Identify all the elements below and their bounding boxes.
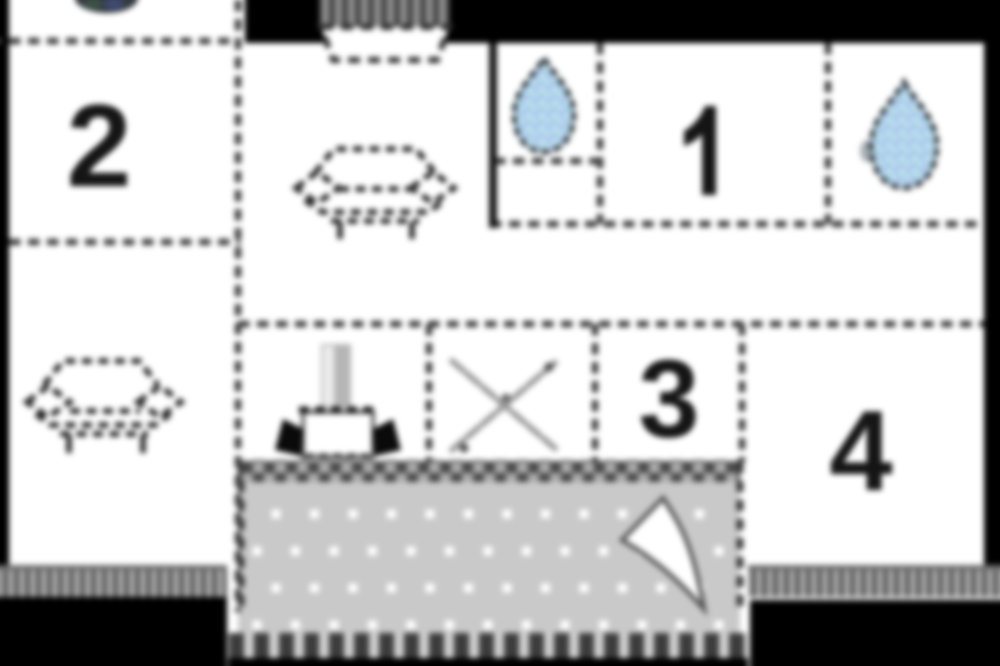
- svg-text:3: 3: [638, 338, 699, 461]
- svg-text:4: 4: [829, 388, 892, 515]
- svg-text:2: 2: [66, 80, 131, 211]
